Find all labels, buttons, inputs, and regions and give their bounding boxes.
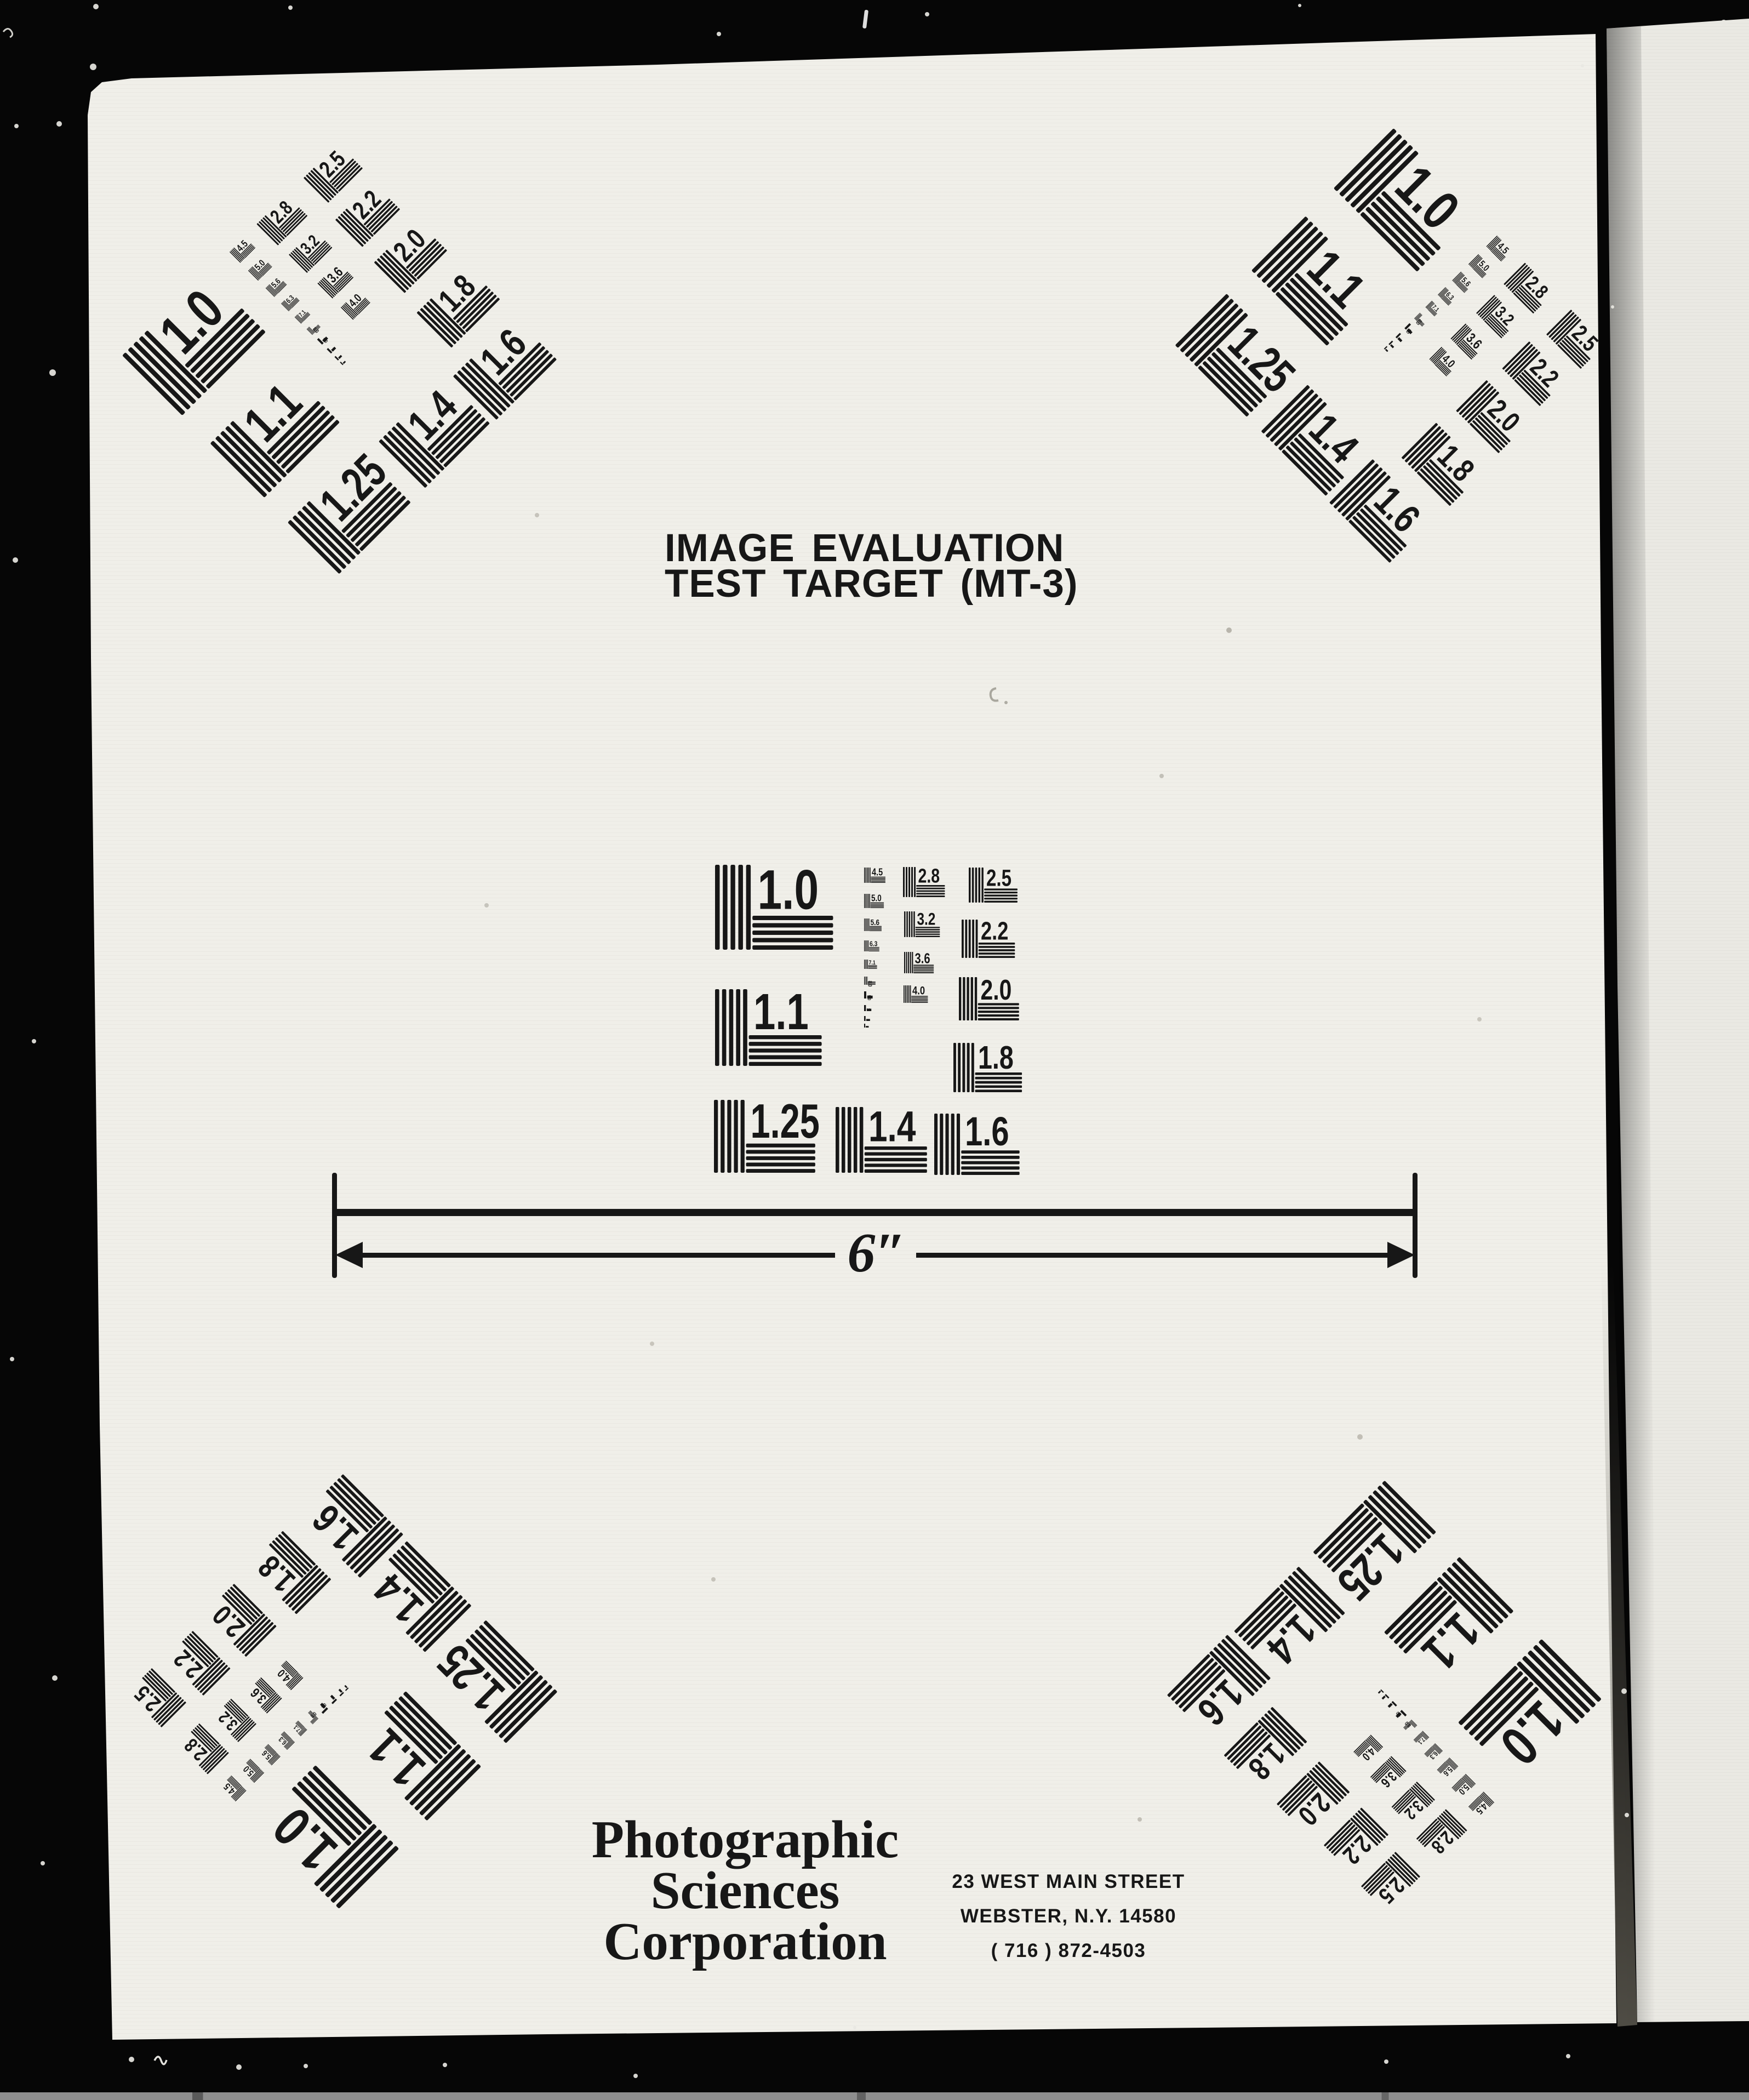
scanned-microfilm-frame: 1.01.11.251.41.61.82.02.22.52.83.23.64.0… — [0, 0, 1749, 2100]
publisher-line-3: Corporation — [559, 1916, 931, 1967]
address-line-2: WEBSTER, N.Y. 14580 — [940, 1899, 1197, 1933]
address-line-1: 23 WEST MAIN STREET — [940, 1864, 1197, 1899]
title-line-2: TEST TARGET (MT-3) — [665, 566, 1158, 602]
scanner-bed-strip — [0, 2092, 1749, 2100]
publisher-line-1: Photographic — [559, 1814, 931, 1865]
page-title: IMAGE EVALUATION TEST TARGET (MT-3) — [665, 530, 1158, 602]
publisher-name: Photographic Sciences Corporation — [559, 1814, 931, 1967]
scale-length-label: 6″ — [835, 1221, 918, 1285]
page — [0, 0, 1749, 2100]
publisher-line-2: Sciences — [559, 1865, 931, 1916]
publisher-address: 23 WEST MAIN STREET WEBSTER, N.Y. 14580 … — [940, 1864, 1197, 1968]
title-line-1: IMAGE EVALUATION — [665, 530, 1158, 566]
address-line-3: ( 716 ) 872-4503 — [940, 1933, 1197, 1968]
